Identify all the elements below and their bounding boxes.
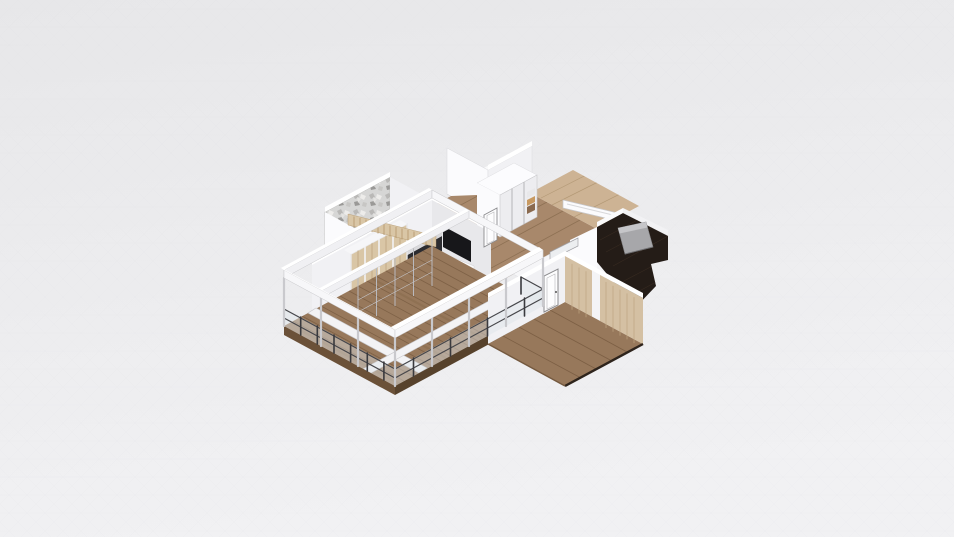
- floorplan-3d-viewport[interactable]: [0, 0, 954, 537]
- room-f-door[interactable]: [544, 269, 558, 312]
- floorplan-canvas[interactable]: [0, 0, 954, 537]
- room-f-door-handle: [555, 291, 557, 293]
- room-f-panel-white-strip: [592, 271, 600, 321]
